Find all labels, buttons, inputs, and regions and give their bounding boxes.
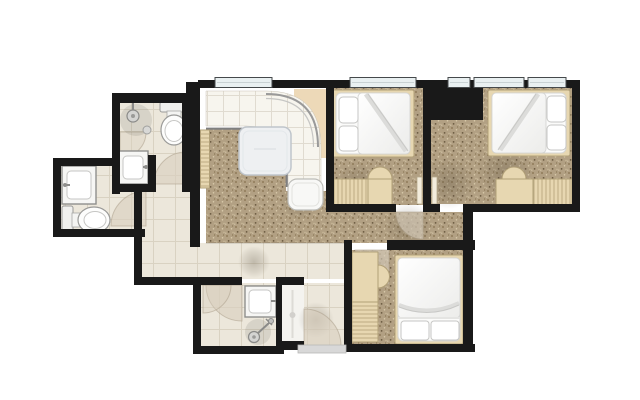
wall [112,184,150,192]
kitchen-door-leaf [201,130,210,188]
corridor-vertical-floor [140,192,192,279]
table-top [239,127,291,175]
floor-plan [0,0,640,400]
wall [467,204,580,212]
pillow [401,321,429,340]
wall [344,344,475,352]
bed-top-middle [332,90,414,157]
entry-threshold [298,345,346,353]
bed-top-right [488,90,570,156]
wall [182,93,192,192]
wall [134,277,201,285]
sink-basin [249,290,271,313]
utility-shaft [428,86,483,120]
dresser [533,179,572,205]
wall [193,277,201,354]
pillow [339,126,358,151]
bed-bottom [395,255,463,344]
faucet-knob [63,183,67,187]
wall [199,277,242,285]
rod-knob [290,312,296,318]
wall [326,204,396,212]
door-leaf [417,177,422,204]
toilet-seat [165,121,183,142]
pillow [547,125,566,150]
wall [134,188,142,285]
wall [276,283,282,343]
desk [496,179,533,205]
dining-table [239,127,291,175]
shower-head-center [252,335,256,339]
toilet-seat [84,212,106,229]
counter-end-cabinet [288,179,323,210]
wall [193,346,284,354]
pillow [431,321,459,340]
pillow [339,97,358,123]
shower-knob [269,319,274,324]
bathroom-door-bridge [156,184,184,196]
sink-basin [67,171,91,199]
sink-basin [123,156,143,179]
wall [53,229,145,237]
floor-plan-page [0,0,640,400]
sink-alcove [118,151,148,184]
drawer-unit [352,302,378,342]
wall [572,80,580,212]
wall [344,240,352,352]
door-leaf [432,177,437,204]
desk [368,179,392,205]
wall [326,88,334,212]
wall [112,93,194,103]
shower-head-center [131,114,135,118]
sink-left [62,166,96,204]
pillow [547,96,566,122]
wall [148,155,156,192]
desk [352,252,378,302]
wall [112,93,120,194]
wall [387,240,475,250]
dresser [334,179,368,205]
sink-bottom [245,286,277,317]
shadow-blob [238,246,270,278]
wall [53,158,120,166]
drain-icon [143,126,151,134]
wall [463,240,473,352]
faucet-knob [144,165,148,169]
wall [53,158,61,237]
